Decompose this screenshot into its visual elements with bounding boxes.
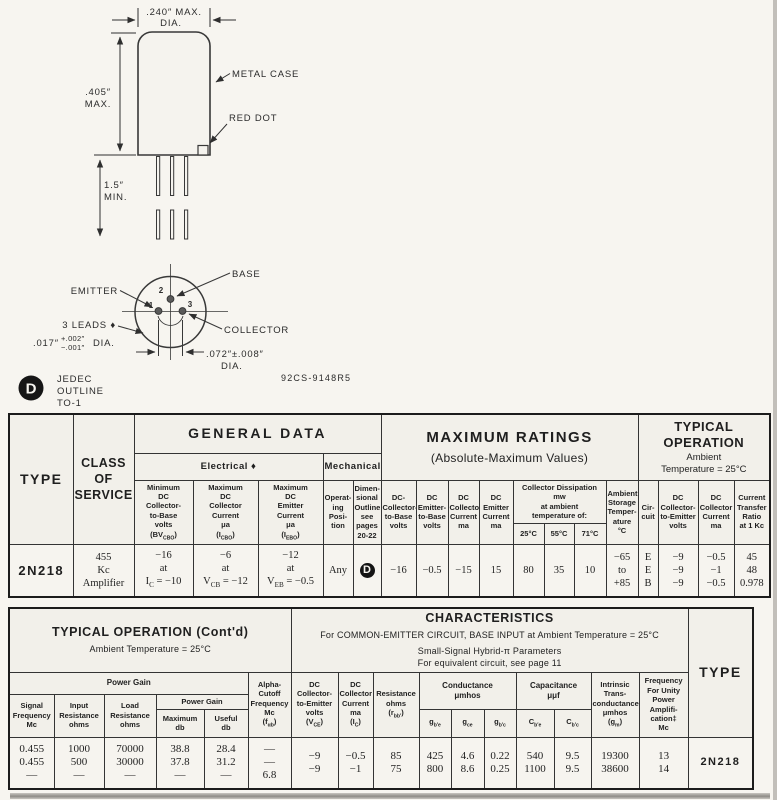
t2-characteristics-sub3: For equivalent circuit, see page 11 xyxy=(293,658,687,669)
t2-cell-useful-db: 28.431.2— xyxy=(204,737,248,789)
t2-cell-g-bpe: 425800 xyxy=(419,737,451,789)
t1-cell-dimensional-outline: D xyxy=(353,544,381,597)
t2-typical-operation-title: TYPICAL OPERATION (Cont'd) xyxy=(11,625,290,641)
t1-general-data-header: GENERAL DATA xyxy=(134,414,381,453)
red-dot-label: RED DOT xyxy=(229,113,277,124)
t2-power-gain-group-header: Power Gain xyxy=(9,672,248,694)
t1-col-dc-collector-current: DCCollectorCurrentma xyxy=(448,480,479,544)
t2-col-c-bpc: Cb′c xyxy=(554,709,591,737)
t2-cell-type: 2N218 xyxy=(688,737,753,789)
pin-3-collector xyxy=(179,308,186,315)
lead-length-label-2: MIN. xyxy=(104,192,127,203)
t2-col-input-resistance: InputResistanceohms xyxy=(54,694,104,737)
t2-col-load-resistance: LoadResistanceohms xyxy=(104,694,156,737)
t2-cell-dc-collector-current: −0.5−1 xyxy=(338,737,373,789)
case-side-view xyxy=(138,32,210,239)
t1-cell-diss-25c: 80 xyxy=(513,544,544,597)
t1-cell-diss-55c: 35 xyxy=(544,544,574,597)
t2-cell-c-bpe: 5401100 xyxy=(516,737,554,789)
dia-max-label: .240″ MAX. xyxy=(146,7,202,18)
t1-typical-operation-title: TYPICALOPERATION xyxy=(640,419,769,450)
t1-col-dc-emitter-current: DCEmitterCurrentma xyxy=(479,480,513,544)
t1-col-dc-eb-volts: DCEmitter-to-Basevolts xyxy=(416,480,448,544)
t1-data-row-2n218: 2N218 455KcAmplifier −16atIC = −10 −6atV… xyxy=(9,544,770,597)
t1-col-dc-collector-current-2: DCCollectorCurrentma xyxy=(698,480,734,544)
pin-2-number: 2 xyxy=(159,286,164,295)
t1-maximum-ratings-title: MAXIMUM RATINGS xyxy=(383,429,637,448)
t1-cell-dc-eb-volts: −0.5 xyxy=(416,544,448,597)
t2-typical-operation-header: TYPICAL OPERATION (Cont'd) Ambient Tempe… xyxy=(9,608,291,672)
outline-d-badge: D xyxy=(360,563,375,578)
t1-cell-storage-temperature: −65to+85 xyxy=(606,544,638,597)
page-edge-shadow xyxy=(773,0,777,800)
t2-col-c-bpe: Cb′e xyxy=(516,709,554,737)
t1-maximum-ratings-subtitle: (Absolute-Maximum Values) xyxy=(383,451,637,466)
t1-col-dimensional-outline: Dimen-sionalOutlinesee pages20-22 xyxy=(353,480,381,544)
lead-length-label: 1.5″ xyxy=(104,180,124,191)
t2-cell-intrinsic-transconductance: 1930038600 xyxy=(591,737,639,789)
t1-col-transfer-ratio: CurrentTransferRatioat 1 Kc xyxy=(734,480,770,544)
t1-col-min-cb-volts: MinimumDCCollector-to-Basevolts(BVCBO) xyxy=(134,480,193,544)
t2-cell-unity-gain-frequency: 1314 xyxy=(639,737,688,789)
t2-col-g-bpe: gb′e xyxy=(419,709,451,737)
lead-dia-label: .017″ xyxy=(33,338,59,349)
t1-electrical-header: Electrical ♦ xyxy=(134,453,323,480)
t2-characteristics-header: CHARACTERISTICS For COMMON-EMITTER CIRCU… xyxy=(291,608,688,672)
t1-col-diss-25c: 25°C xyxy=(513,523,544,544)
t2-typical-operation-subtitle: Ambient Temperature = 25°C xyxy=(11,644,290,655)
t2-col-dc-ce-volts: DCCollector-to-Emittervolts(VCE) xyxy=(291,672,338,737)
t1-col-circuit: Cir-cuit xyxy=(638,480,658,544)
t1-mechanical-header: Mechanical xyxy=(323,453,381,480)
lead-dia-minus-tol: −.001″ xyxy=(61,343,84,352)
jedec-label-2: OUTLINE xyxy=(57,386,104,397)
scan-artifact-strip xyxy=(10,793,770,799)
t2-type-header: TYPE xyxy=(688,608,753,737)
t1-cell-diss-71c: 10 xyxy=(574,544,606,597)
jedec-label-1: JEDEC xyxy=(57,374,92,385)
t2-cell-g-ce: 4.68.6 xyxy=(451,737,484,789)
t2-characteristics-title: CHARACTERISTICS xyxy=(293,611,687,627)
package-outline-diagram: .240″ MAX. DIA. METAL CASE RED DOT .405″… xyxy=(0,0,432,412)
characteristics-table: TYPICAL OPERATION (Cont'd) Ambient Tempe… xyxy=(8,607,754,790)
pin-base-view xyxy=(118,264,230,360)
t2-col-signal-frequency: SignalFrequencyMc xyxy=(9,694,54,737)
t1-cell-circuit: EEB xyxy=(638,544,658,597)
lead-dia-plus-tol: +.002″ xyxy=(61,334,84,343)
jedec-label-3: TO-1 xyxy=(57,398,82,409)
t1-cell-max-emitter-current: −12atVEB = −0.5 xyxy=(258,544,323,597)
t2-cell-resistance: 8575 xyxy=(373,737,419,789)
t2-data-row-2n218: 0.4550.455— 1000500— 7000030000— 38.837.… xyxy=(9,737,753,789)
pin-2-base xyxy=(167,296,174,303)
jedec-d-badge-letter: D xyxy=(26,381,37,398)
t1-col-storage-temperature: AmbientStorageTemper-ature°C xyxy=(606,480,638,544)
t1-cell-dc-emitter-current: 15 xyxy=(479,544,513,597)
leads-label: 3 LEADS ♦ xyxy=(62,320,116,331)
t2-col-g-bpc: gb′c xyxy=(484,709,516,737)
pin-spacing-label-2: DIA. xyxy=(221,361,243,372)
lead-dia-unit: DIA. xyxy=(93,338,115,349)
metal-case-outline xyxy=(138,32,210,155)
t1-cell-dc-collector-current: −15 xyxy=(448,544,479,597)
leads-side-view xyxy=(157,157,188,240)
t1-cell-dc-collector-current-2: −0.5−1−0.5 xyxy=(698,544,734,597)
t1-cell-dc-ce-volts: −9−9−9 xyxy=(658,544,698,597)
emitter-label: EMITTER xyxy=(71,286,118,297)
t2-cell-dc-ce-volts: −9−9 xyxy=(291,737,338,789)
t2-cell-c-bpc: 9.59.5 xyxy=(554,737,591,789)
dia-max-label-2: DIA. xyxy=(160,18,182,29)
t1-maximum-ratings-header: MAXIMUM RATINGS (Absolute-Maximum Values… xyxy=(381,414,638,480)
t1-cell-max-collector-current: −6atVCB = −12 xyxy=(193,544,258,597)
height-label-2: MAX. xyxy=(85,99,111,110)
t2-cell-signal-frequency: 0.4550.455— xyxy=(9,737,54,789)
t2-cell-input-resistance: 1000500— xyxy=(54,737,104,789)
t1-col-max-emitter-current: MaximumDCEmitterCurrentμa(IEBO) xyxy=(258,480,323,544)
t1-typical-operation-subtitle: AmbientTemperature = 25°C xyxy=(640,452,769,475)
t1-typical-operation-header: TYPICALOPERATION AmbientTemperature = 25… xyxy=(638,414,770,480)
t1-cell-transfer-ratio: 45480.978 xyxy=(734,544,770,597)
t2-capacitance-group-header: Capacitanceμμf xyxy=(516,672,591,709)
t2-conductance-group-header: Conductanceμmhos xyxy=(419,672,516,709)
t2-col-unity-gain-frequency: FrequencyFor UnityPowerAmplifi-cation‡Mc xyxy=(639,672,688,737)
metal-case-label: METAL CASE xyxy=(232,69,299,80)
red-dot-marker xyxy=(198,146,208,156)
t1-col-diss-55c: 55°C xyxy=(544,523,574,544)
pin-3-number: 3 xyxy=(188,300,193,309)
t2-col-maximum-db: Maximumdb xyxy=(156,709,204,737)
t2-cell-maximum-db: 38.837.8— xyxy=(156,737,204,789)
t1-col-dc-ce-volts: DCCollector-to-Emittervolts xyxy=(658,480,698,544)
t1-cell-type: 2N218 xyxy=(9,544,73,597)
t1-col-diss-71c: 71°C xyxy=(574,523,606,544)
t1-cell-operating-position: Any xyxy=(323,544,353,597)
t1-cell-class-of-service: 455KcAmplifier xyxy=(73,544,134,597)
t2-col-intrinsic-transconductance: IntrinsicTrans-conductanceμmhos(gm) xyxy=(591,672,639,737)
t2-power-gain-sub-header: Power Gain xyxy=(156,694,248,709)
datasheet-page: .240″ MAX. DIA. METAL CASE RED DOT .405″… xyxy=(0,0,777,800)
t1-col-dc-cb-volts: DC-Collector-to-Basevolts xyxy=(381,480,416,544)
t2-col-dc-collector-current: DCCollectorCurrentma(IC) xyxy=(338,672,373,737)
t2-col-alpha-cutoff: Alpha-CutoffFrequencyMc(fαb) xyxy=(248,672,291,737)
t2-col-useful-db: Usefuldb xyxy=(204,709,248,737)
t1-collector-dissipation-header: Collector Dissipationmwat ambienttempera… xyxy=(513,480,606,523)
general-data-ratings-table: TYPE CLASSOFSERVICE GENERAL DATA MAXIMUM… xyxy=(8,413,771,598)
t2-cell-load-resistance: 7000030000— xyxy=(104,737,156,789)
t1-class-of-service-header: CLASSOFSERVICE xyxy=(73,414,134,544)
t1-type-header: TYPE xyxy=(9,414,73,544)
t2-characteristics-sub2: Small-Signal Hybrid-π Parameters xyxy=(293,646,687,657)
t2-col-resistance: Resistanceohms(rbb′) xyxy=(373,672,419,737)
t2-col-g-ce: gce xyxy=(451,709,484,737)
t2-cell-g-bpc: 0.220.25 xyxy=(484,737,516,789)
drawing-number: 92CS-9148R5 xyxy=(281,373,351,383)
t2-cell-alpha-cutoff: ——6.8 xyxy=(248,737,291,789)
t1-col-max-collector-current: MaximumDCCollectorCurrentμa(ICBO) xyxy=(193,480,258,544)
height-label: .405″ xyxy=(85,87,111,98)
t1-cell-dc-cb-volts: −16 xyxy=(381,544,416,597)
t1-cell-min-cb-volts: −16atIC = −10 xyxy=(134,544,193,597)
t2-characteristics-sub1: For COMMON-EMITTER CIRCUIT, BASE INPUT a… xyxy=(293,630,687,641)
pin-spacing-label: .072″±.008″ xyxy=(206,349,264,360)
t1-col-operating-position: Operat-ingPosi-tion xyxy=(323,480,353,544)
collector-label: COLLECTOR xyxy=(224,325,289,336)
base-label: BASE xyxy=(232,269,261,280)
pin-1-number: 1 xyxy=(149,301,154,310)
pin-1-emitter xyxy=(155,308,162,315)
